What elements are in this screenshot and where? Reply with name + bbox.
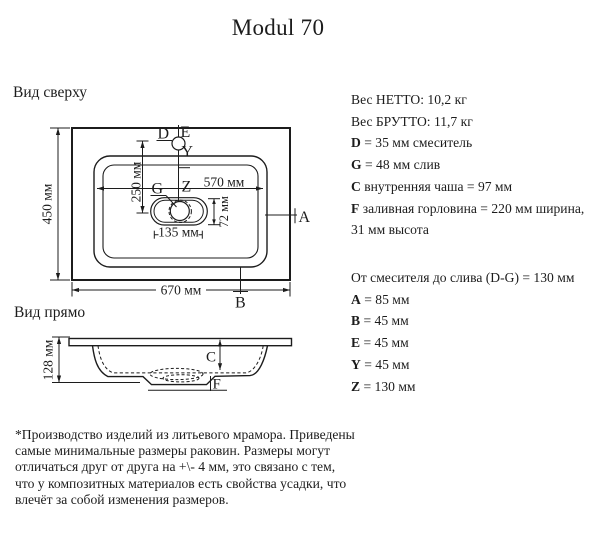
dim-72-label: 72 мм — [217, 196, 231, 228]
spec-key: C — [351, 179, 361, 194]
counter-slab — [69, 339, 292, 346]
point-a-label: A — [299, 209, 311, 226]
spec-line-g: G = 48 мм слив — [351, 154, 584, 176]
basin-profile — [93, 346, 268, 385]
point-f-label: F — [213, 377, 221, 393]
spec-line-a: A = 85 мм — [351, 289, 574, 311]
footnote: *Производство изделий из литьевого мрамо… — [15, 427, 355, 508]
spec-key: D — [351, 135, 361, 150]
dim-570-label: 570 мм — [204, 175, 245, 190]
basin-inner-hidden — [98, 346, 263, 373]
spec-line-f2: 31 мм высота — [351, 219, 584, 241]
spec-key: Z — [351, 379, 360, 394]
spec-text: Вес НЕТТО: 10,2 кг — [351, 92, 467, 107]
spec-line-b: B = 45 мм — [351, 310, 574, 332]
specs-primary-block: Вес НЕТТО: 10,2 кг Вес БРУТТО: 11,7 кг D… — [351, 89, 584, 241]
footnote-line: *Производство изделий из литьевого мрамо… — [15, 427, 355, 443]
spec-key: Y — [351, 357, 361, 372]
spec-line-netto: Вес НЕТТО: 10,2 кг — [351, 89, 584, 111]
spec-text: = 45 мм — [360, 335, 409, 350]
spec-line-brutto: Вес БРУТТО: 11,7 кг — [351, 111, 584, 133]
footnote-line: отличаться друг от друга на +\- 4 мм, эт… — [15, 459, 355, 475]
drain-recess-hidden-outer — [150, 368, 203, 379]
spec-text: Вес БРУТТО: 11,7 кг — [351, 114, 473, 129]
footnote-line: самые минимальные размеры раковин. Разме… — [15, 443, 355, 459]
top-view-label: Вид сверху — [13, 84, 87, 102]
point-g-label: G — [152, 181, 164, 198]
dim-450-label: 450 мм — [40, 183, 55, 224]
spec-text: 31 мм высота — [351, 222, 429, 237]
spec-line-e: E = 45 мм — [351, 332, 574, 354]
point-d-label: D — [158, 126, 170, 143]
spec-key: A — [351, 292, 361, 307]
top-view-drawing: 450 мм 670 мм 570 мм 250 мм 72 мм 135 мм… — [0, 110, 340, 315]
drain-hole — [170, 202, 189, 221]
dim-135-label: 135 мм — [158, 225, 199, 240]
spec-text: заливная горловина = 220 мм ширина, — [359, 201, 584, 216]
spec-text: внутренняя чаша = 97 мм — [361, 179, 512, 194]
spec-line-y: Y = 45 мм — [351, 354, 574, 376]
spec-key: G — [351, 157, 362, 172]
spec-line-dg: От смесителя до слива (D-G) = 130 мм — [351, 267, 574, 289]
spec-line-c: C внутренняя чаша = 97 мм — [351, 176, 584, 198]
spec-text: = 45 мм — [361, 357, 410, 372]
spec-line-d: D = 35 мм смеситель — [351, 132, 584, 154]
point-c-label: C — [206, 350, 216, 366]
point-y-label: Y — [182, 144, 194, 161]
spec-text: = 35 мм смеситель — [361, 135, 472, 150]
footnote-line: влечёт за собой изменения размеров. — [15, 492, 355, 508]
spec-text: = 45 мм — [360, 313, 409, 328]
spec-text: От смесителя до слива (D-G) = 130 мм — [351, 270, 574, 285]
spec-key: B — [351, 313, 360, 328]
specs-secondary-block: От смесителя до слива (D-G) = 130 мм A =… — [351, 267, 574, 397]
point-e-label: E — [181, 124, 191, 141]
footnote-line: что у композитных материалов есть свойст… — [15, 476, 355, 492]
spec-sheet: Modul 70 Вид сверху Вид прямо — [0, 0, 600, 534]
spec-key: E — [351, 335, 360, 350]
spec-text: = 85 мм — [361, 292, 410, 307]
front-view-drawing: 128 мм C F — [0, 300, 340, 410]
dim-670-label: 670 мм — [161, 283, 202, 298]
spec-text: = 48 мм слив — [362, 157, 441, 172]
dim-128-label: 128 мм — [41, 339, 56, 380]
point-z-label: Z — [182, 179, 192, 196]
spec-text: = 130 мм — [360, 379, 415, 394]
spec-line-z: Z = 130 мм — [351, 376, 574, 398]
spec-line-f: F заливная горловина = 220 мм ширина, — [351, 198, 584, 220]
dim-250-label: 250 мм — [129, 161, 144, 202]
page-title: Modul 70 — [128, 15, 428, 41]
